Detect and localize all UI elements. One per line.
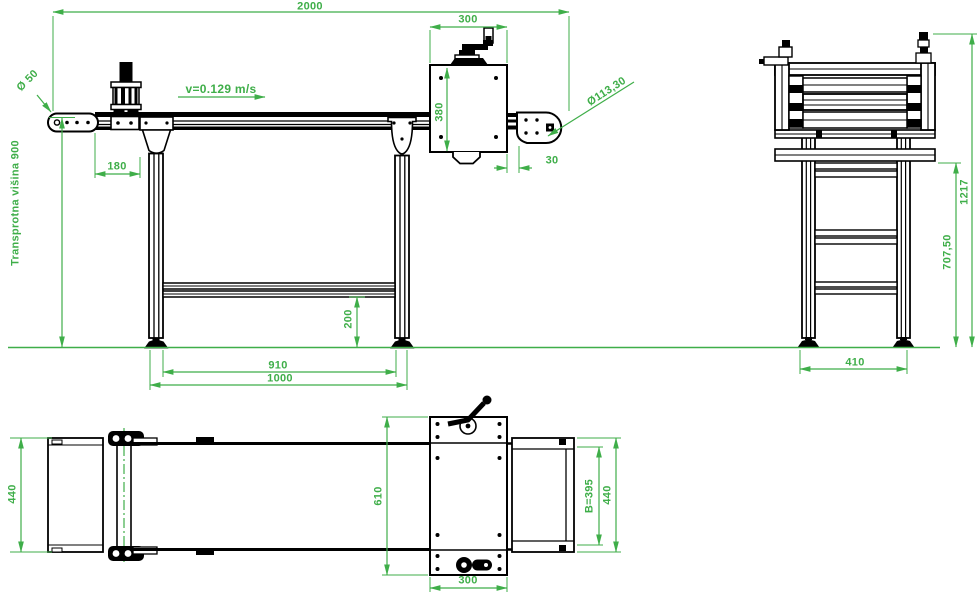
dimension-label-drive-offset: 30 xyxy=(546,156,559,167)
drive-unit-top-view xyxy=(430,396,507,576)
dimension-label-left-assembly-width: 440 xyxy=(8,484,19,503)
dimension-label-drive-depth: 610 xyxy=(374,486,385,505)
end-view xyxy=(759,32,935,348)
dimension-label-belt-width: B=395 xyxy=(585,479,596,513)
drawing-geometry xyxy=(0,0,980,615)
belt-speed-label: v=0.129 m/s xyxy=(185,83,256,95)
dimension-label-frame-height: 707,50 xyxy=(943,234,954,269)
dimension-label-leg-span-outer: 1000 xyxy=(267,374,293,385)
sensor-tower xyxy=(111,62,141,113)
tension-end-assembly xyxy=(512,438,574,552)
left-leg xyxy=(140,117,173,349)
end-view-legs xyxy=(798,133,915,348)
side-view xyxy=(48,28,561,349)
end-view-sensors xyxy=(759,32,931,65)
technical-drawing-conveyor: 2000 300 v=0.129 m/s Ø 50 180 380 30 Ø11… xyxy=(0,0,980,615)
dimension-label-drive-width-bottom: 300 xyxy=(458,576,477,587)
right-leg xyxy=(388,118,416,349)
dimension-label-drive-width-top: 300 xyxy=(458,15,477,26)
idler-roller-assembly xyxy=(48,428,157,562)
dimension-label-brace-height: 200 xyxy=(344,309,355,328)
transport-height-label: Transprotna višina 900 xyxy=(11,140,22,266)
dimension-label-total-height: 1217 xyxy=(960,179,971,205)
dimension-label-drive-height: 380 xyxy=(435,102,446,121)
dimension-label-foot-span: 410 xyxy=(845,358,864,369)
drive-unit xyxy=(430,28,507,164)
dimension-label-overall-length: 2000 xyxy=(297,2,323,13)
dimension-label-tail-offset: 180 xyxy=(107,162,126,173)
end-view-rollers xyxy=(803,78,907,128)
top-view xyxy=(48,396,574,576)
drive-pulley-bracket xyxy=(517,113,561,144)
cross-braces xyxy=(163,283,395,297)
dimension-label-overall-width: 440 xyxy=(603,485,614,504)
dimension-label-leg-span-inner: 910 xyxy=(268,361,287,372)
